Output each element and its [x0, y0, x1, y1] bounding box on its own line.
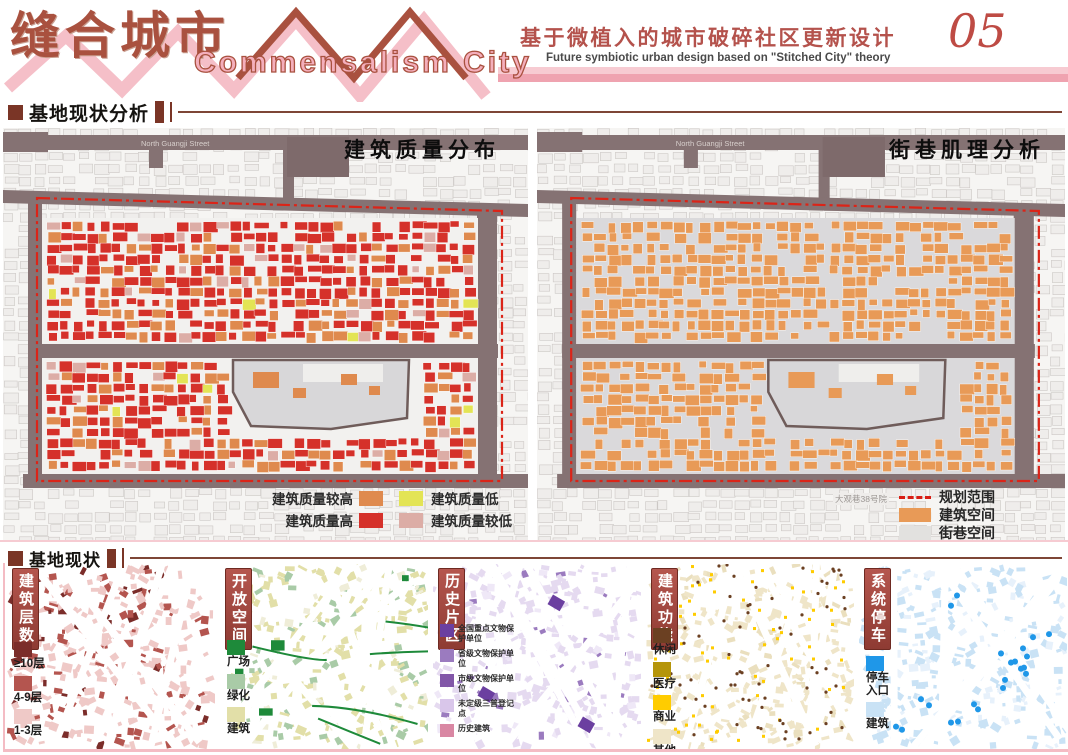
- header-square-icon: [8, 551, 23, 566]
- legend-item: 医疗: [653, 662, 676, 691]
- legend-label: 医疗: [653, 678, 676, 691]
- legend-row: 建筑质量高建筑质量较低: [249, 510, 512, 530]
- legend-swatch: [899, 526, 931, 540]
- legend-swatch: [899, 496, 931, 499]
- legend-item: 历史建筑: [440, 724, 516, 737]
- subtitle-en: Future symbiotic urban design based on "…: [546, 52, 890, 64]
- legend-label: 建筑空间: [939, 505, 995, 525]
- legend-swatch: [653, 729, 671, 744]
- legend-row: 规划范围: [899, 488, 995, 506]
- header-rule: [130, 557, 1062, 559]
- legend-building-function: 休闲医疗商业其他: [653, 628, 676, 749]
- legend-item: 商业: [653, 695, 676, 724]
- legend-label: 未定级三普登记点: [458, 699, 516, 719]
- legend-label: 建筑: [227, 723, 250, 736]
- poster: { "header": { "title_cn": "缝合城市", "title…: [0, 0, 1068, 755]
- legend-swatch: [440, 649, 454, 662]
- legend-label: 市级文物保护单位: [458, 674, 516, 694]
- legend-swatch: [440, 624, 454, 637]
- legend-item: 绿化: [227, 674, 250, 703]
- legend-swatch: [653, 628, 671, 643]
- map-historic-district: 历史片区 全国重点文物保护单位省级文物保护单位市级文物保护单位未定级三普登记点历…: [433, 564, 641, 749]
- legend-label: 商业: [653, 711, 676, 724]
- section-header-site-status: 基地现状: [8, 545, 1062, 571]
- legend-item: 未定级三普登记点: [440, 699, 516, 719]
- header-block-icon: [107, 549, 116, 568]
- page-title-en: Commensalism City: [194, 46, 532, 80]
- section-title: 基地现状: [29, 546, 101, 571]
- legend-label: ≥10层: [14, 658, 45, 671]
- legend-swatch: [227, 640, 245, 655]
- legend-row: 建筑空间: [899, 506, 995, 524]
- legend-swatch: [440, 699, 454, 712]
- legend-label: 1-3层: [14, 725, 45, 738]
- legend-row: 建筑质量较高建筑质量低: [249, 488, 512, 508]
- legend-label: 休闲: [653, 644, 676, 657]
- legend-item: 建筑质量较高: [249, 488, 353, 508]
- pink-separator: [0, 540, 1068, 542]
- legend-label: 全国重点文物保护单位: [458, 624, 516, 644]
- legend-swatch: [653, 695, 671, 710]
- header-square-icon: [8, 105, 23, 120]
- legend-item: 全国重点文物保护单位: [440, 624, 516, 644]
- legend-label: 绿化: [227, 690, 250, 703]
- legend-label: 停车入口: [866, 672, 892, 697]
- legend-item: [359, 491, 383, 506]
- legend-item: 1-3层: [14, 709, 45, 738]
- legend-label: 历史建筑: [458, 724, 516, 734]
- header-rule: [178, 111, 1062, 113]
- section-header-site-analysis: 基地现状分析: [8, 99, 1062, 125]
- legend-item: 市级文物保护单位: [440, 674, 516, 694]
- building-quality-map: North Guangji Street 建筑质量分布 建筑质量较高建筑质量低建…: [3, 128, 528, 545]
- map-title-street-texture: 街巷肌理分析: [889, 134, 1045, 164]
- legend-swatch: [14, 676, 32, 691]
- legend-swatch: [653, 662, 671, 677]
- legend-label: 建筑: [866, 718, 892, 731]
- map-note-label: 大观巷38号院: [833, 493, 889, 505]
- legend-label: 规划范围: [939, 487, 995, 507]
- legend-item: 其他: [653, 729, 676, 749]
- legend-swatch: [899, 508, 931, 522]
- legend-label: 省级文物保护单位: [458, 649, 516, 669]
- building-quality-legend: 建筑质量较高建筑质量低建筑质量高建筑质量较低: [249, 488, 512, 532]
- small-maps-strip: 建筑层数 ≥10层4-9层1-3层 开放空间 广场绿化建筑 历史片区 全国重点文…: [3, 563, 1068, 752]
- subtitle-cn: 基于微植入的城市破碎社区更新设计: [520, 22, 896, 52]
- legend-item: [399, 491, 423, 506]
- legend-item: 建筑: [866, 702, 892, 731]
- legend-item: 省级文物保护单位: [440, 649, 516, 669]
- legend-system-parking: 停车入口建筑: [866, 656, 892, 736]
- legend-building-floors: ≥10层4-9层1-3层: [14, 642, 45, 743]
- legend-item: 建筑: [227, 707, 250, 736]
- legend-label: 其他: [653, 745, 676, 749]
- legend-item: [399, 513, 423, 528]
- legend-swatch: [866, 702, 884, 717]
- legend-item: 建筑质量较低: [431, 510, 512, 530]
- legend-swatch: [866, 656, 884, 671]
- map-building-floors: 建筑层数 ≥10层4-9层1-3层: [7, 564, 215, 749]
- legend-item: 广场: [227, 640, 250, 669]
- pink-bar-top: [498, 67, 1068, 74]
- legend-item: 停车入口: [866, 656, 892, 697]
- legend-item: ≥10层: [14, 642, 45, 671]
- legend-item: 4-9层: [14, 676, 45, 705]
- legend-swatch: [14, 709, 32, 724]
- legend-swatch: [227, 674, 245, 689]
- map-building-function: 建筑功能 休闲医疗商业其他: [646, 564, 854, 749]
- header-tick-icon: [170, 102, 172, 122]
- map-tag-open-space: 开放空间: [225, 568, 252, 650]
- map-system-parking: 系统停车 停车入口建筑: [859, 564, 1067, 749]
- header-block-icon: [155, 101, 164, 123]
- section-title: 基地现状分析: [29, 99, 149, 126]
- map-tag-system-parking: 系统停车: [864, 568, 891, 650]
- legend-item: [359, 513, 383, 528]
- page-number: 05: [948, 4, 1007, 58]
- legend-swatch: [440, 724, 454, 737]
- header-tick-icon: [122, 548, 124, 568]
- svg-text:North Guangji Street: North Guangji Street: [141, 139, 210, 148]
- legend-historic-district: 全国重点文物保护单位省级文物保护单位市级文物保护单位未定级三普登记点历史建筑: [440, 624, 516, 742]
- legend-swatch: [440, 674, 454, 687]
- map-tag-building-floors: 建筑层数: [12, 568, 39, 650]
- map-title-building-quality: 建筑质量分布: [344, 134, 500, 164]
- street-texture-map: North Guangji Street 街巷肌理分析 大观巷38号院 规划范围…: [537, 128, 1065, 545]
- map-open-space: 开放空间 广场绿化建筑: [220, 564, 428, 749]
- legend-item: 休闲: [653, 628, 676, 657]
- legend-item: 建筑质量低: [431, 488, 499, 508]
- legend-label: 广场: [227, 656, 250, 669]
- legend-label: 4-9层: [14, 692, 45, 705]
- legend-swatch: [227, 707, 245, 722]
- pink-bar-bottom: [498, 74, 1068, 82]
- svg-text:North Guangji Street: North Guangji Street: [676, 139, 746, 148]
- legend-item: 建筑质量高: [249, 510, 353, 530]
- legend-swatch: [14, 642, 32, 657]
- legend-open-space: 广场绿化建筑: [227, 640, 250, 741]
- street-texture-legend: 规划范围建筑空间街巷空间: [899, 488, 995, 542]
